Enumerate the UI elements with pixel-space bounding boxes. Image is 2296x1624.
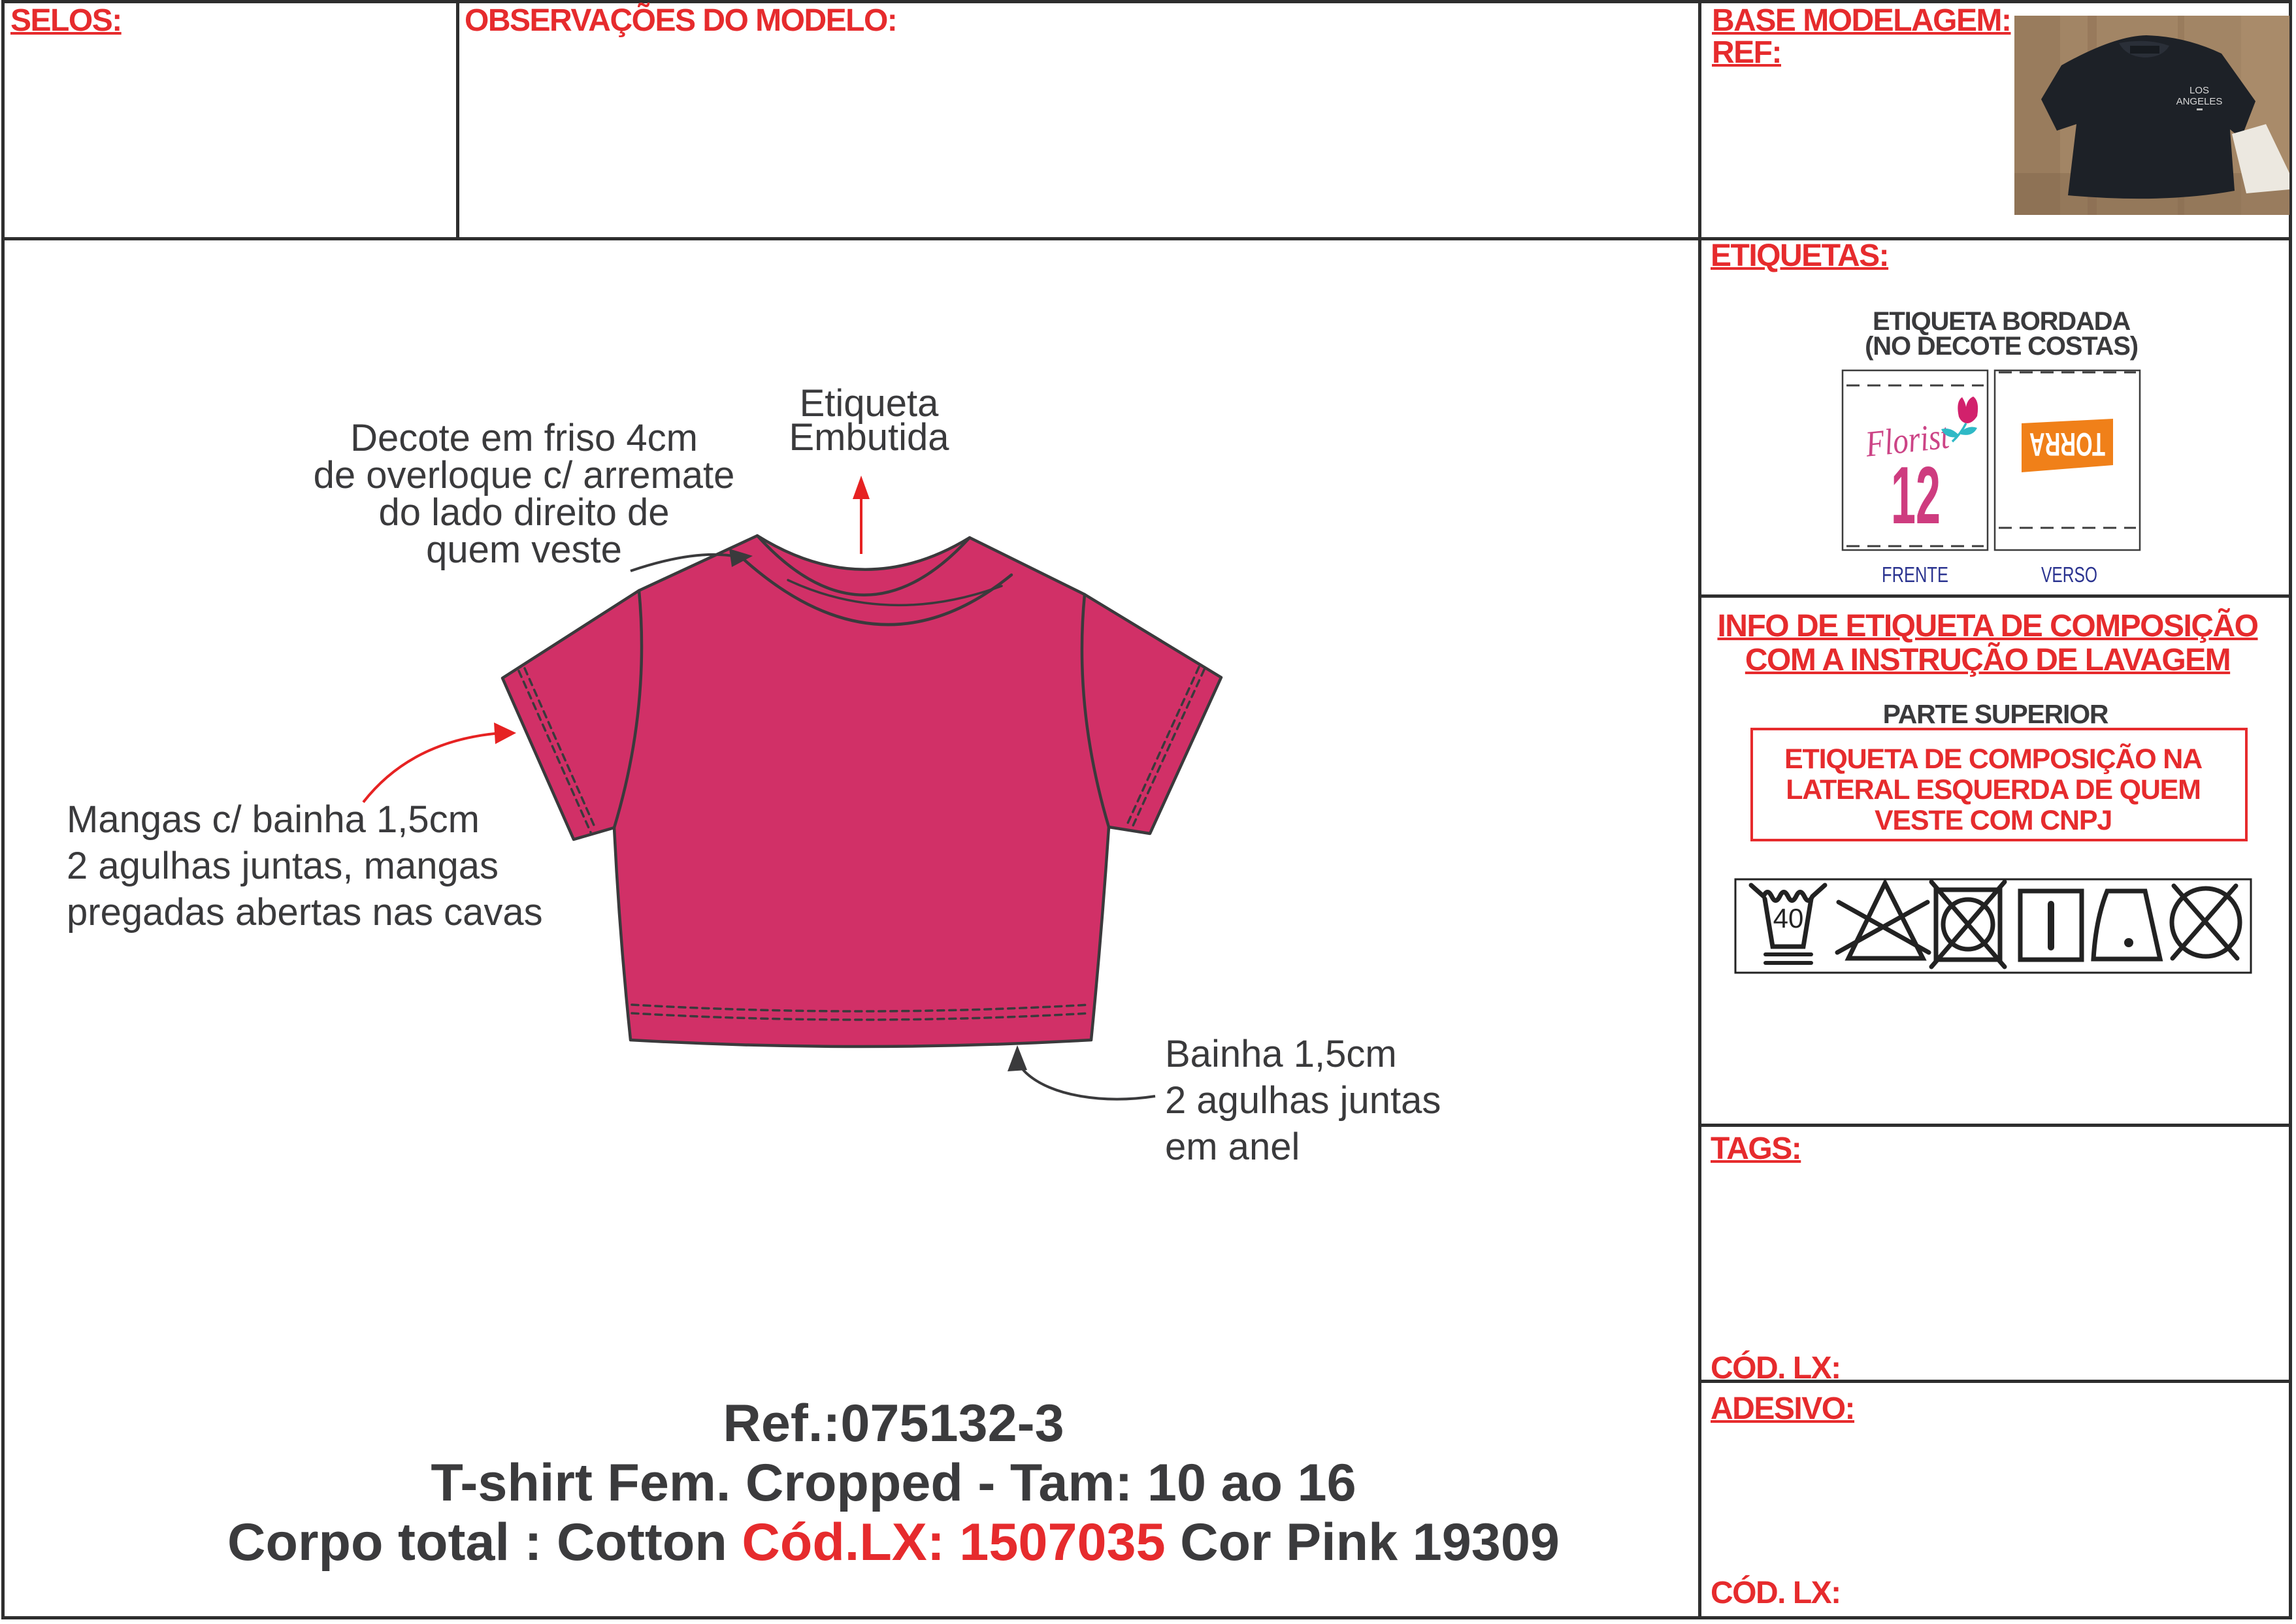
svg-text:FRENTE: FRENTE (1882, 562, 1948, 587)
svg-text:LOS: LOS (2189, 85, 2209, 96)
svg-text:40: 40 (1773, 903, 1804, 934)
svg-text:12: 12 (1891, 451, 1941, 541)
svg-text:ANGELES: ANGELES (2176, 96, 2223, 107)
svg-text:TORRA: TORRA (2029, 426, 2105, 463)
svg-text:VERSO: VERSO (2041, 562, 2097, 587)
